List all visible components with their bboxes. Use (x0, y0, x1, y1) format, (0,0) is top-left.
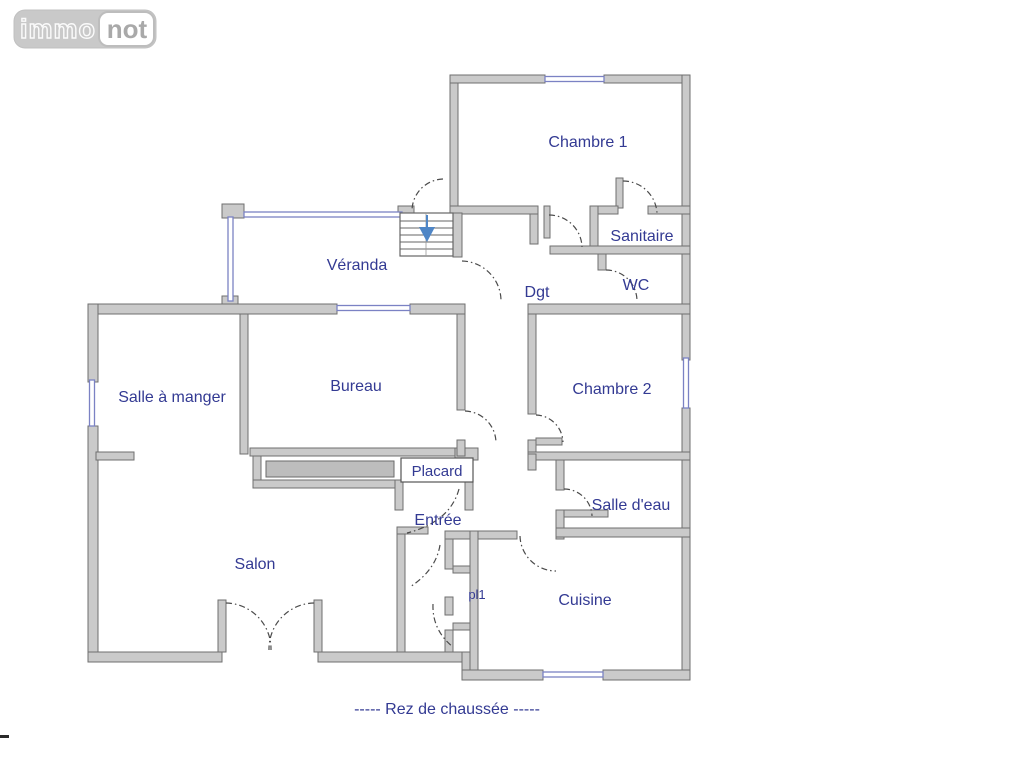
wall-segment (457, 314, 465, 410)
room-label-cuisine: Cuisine (558, 592, 611, 609)
window-salle-a-manger (90, 380, 95, 426)
room-label-chambre1: Chambre 1 (548, 134, 627, 151)
window-cuisine (543, 672, 603, 677)
wall-segment (318, 652, 470, 662)
wall-segment (445, 630, 453, 652)
room-label-dgt: Dgt (525, 284, 550, 301)
wall-segment (218, 600, 226, 652)
logo-immo-text: immo (20, 14, 96, 44)
wall-segment (314, 600, 322, 652)
wall-segment (88, 652, 222, 662)
wall-segment (556, 460, 564, 490)
wall-segment (465, 480, 473, 510)
wall-segment (528, 314, 536, 414)
wall-segment (648, 206, 690, 214)
room-label-wc: WC (623, 277, 650, 294)
windows (90, 77, 689, 678)
logo-not-text: not (107, 14, 148, 44)
wall-segment (450, 206, 538, 214)
wall-segment (528, 454, 536, 470)
door-arc-hall-upper (410, 545, 440, 587)
wall-segment (453, 623, 470, 630)
window-chambre2 (684, 358, 689, 408)
wall-segment (397, 527, 405, 652)
veranda-glass-left (228, 217, 233, 301)
floor-caption: ----- Rez de chaussée ----- (354, 701, 540, 718)
wall-segment (88, 426, 98, 662)
door-arc-cuisine (520, 536, 556, 571)
wall-segment (550, 246, 690, 254)
wall-segment (395, 480, 403, 510)
stray-mark (0, 735, 9, 738)
room-label-salle-deau: Salle d'eau (592, 497, 671, 514)
wall-segment (450, 75, 545, 83)
wall-segment (88, 304, 98, 382)
wall-segment (598, 254, 606, 270)
room-label-veranda: Véranda (327, 257, 388, 274)
door-arc-chambre1 (549, 215, 582, 247)
wall-segment (544, 206, 550, 238)
room-labels: Chambre 1 Sanitaire WC Dgt Véranda Salle… (118, 134, 673, 609)
room-label-bureau: Bureau (330, 378, 382, 395)
stairs (400, 213, 453, 256)
wall-segment (528, 452, 690, 460)
wall-segment (410, 304, 465, 314)
wall-segment (450, 75, 458, 213)
immonot-logo: immo not (14, 10, 156, 48)
room-label-salon: Salon (235, 556, 276, 573)
wall-segment (603, 670, 690, 680)
wall-segment (253, 480, 398, 488)
wall-segment (530, 214, 538, 244)
wall-segment (528, 304, 690, 314)
wall-segment (445, 597, 453, 615)
veranda-glass-top (244, 212, 402, 217)
room-label-salle-a-manger: Salle à manger (118, 389, 226, 406)
wall-segment (604, 75, 690, 83)
door-arc-salon-left (226, 603, 271, 650)
room-label-placard: Placard (412, 463, 463, 480)
window-chambre1 (545, 77, 604, 82)
wall-segment (536, 438, 562, 445)
room-label-sanitaire: Sanitaire (610, 228, 673, 245)
wall-segment (445, 531, 517, 539)
window-bureau (337, 306, 410, 311)
wall-segment (88, 304, 337, 314)
floor-plan-page: immo not (0, 0, 1013, 776)
wall-segment (96, 452, 134, 460)
wall-segment (453, 213, 462, 257)
door-arc-veranda-corridor (462, 261, 501, 300)
wall-segment (250, 448, 465, 456)
room-label-entree: Entrée (414, 512, 461, 529)
wall-segment (445, 539, 453, 569)
door-arc-stairs-top (412, 179, 443, 210)
room-label-chambre2: Chambre 2 (572, 381, 651, 398)
door-arc-salon-right (269, 603, 314, 650)
door-arc-bureau (465, 411, 496, 443)
wall-segment (556, 528, 690, 537)
wall-segment (682, 408, 690, 680)
floor-plan-drawing: immo not (0, 0, 1013, 776)
wall-segment (457, 440, 465, 456)
wall-segment (222, 204, 244, 218)
wall-segment (240, 314, 248, 454)
wall-segment (453, 566, 470, 573)
wall-segment (682, 75, 690, 360)
placard-shelf (266, 461, 394, 477)
room-label-pl1: pl1 (468, 587, 485, 602)
wall-segment (470, 531, 478, 680)
walls (88, 75, 690, 680)
wall-segment (462, 670, 543, 680)
wall-segment (616, 178, 623, 208)
